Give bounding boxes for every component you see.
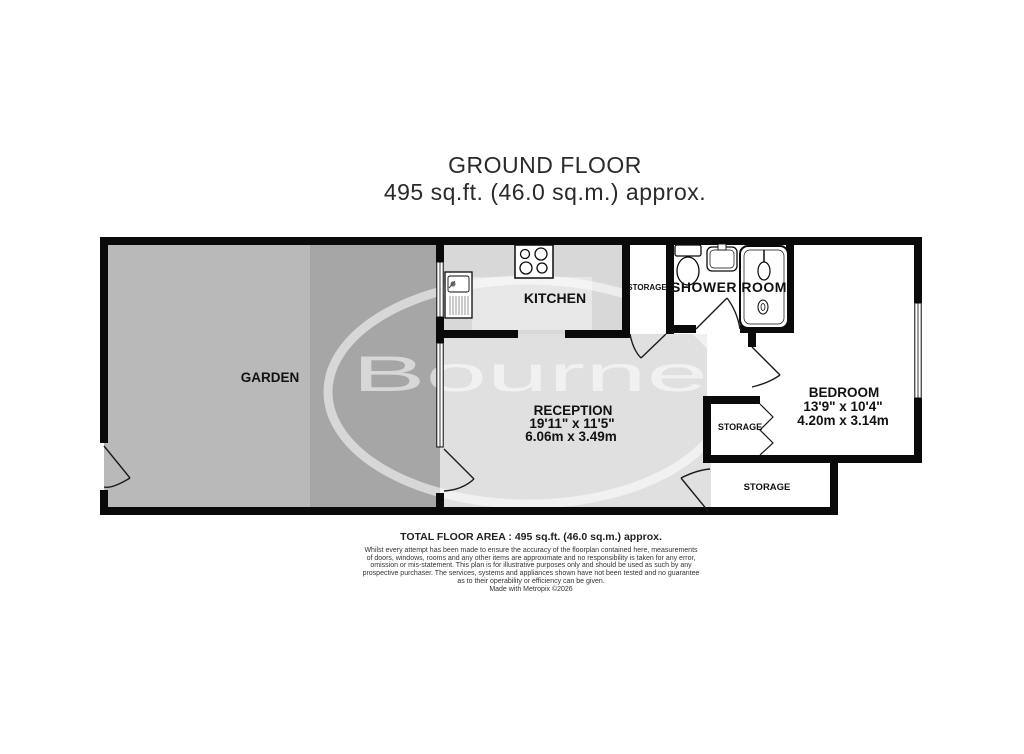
garden-label: GARDEN xyxy=(241,370,300,385)
wall-garden-top xyxy=(100,237,444,245)
made-with-credit: Made with Metropix ©2026 xyxy=(31,586,1024,594)
disclaimer: Whilst every attempt has been made to en… xyxy=(31,547,1024,593)
kitchen-sink-icon xyxy=(445,272,472,318)
wall-closet-top xyxy=(703,396,760,404)
disclaimer-line: Whilst every attempt has been made to en… xyxy=(31,547,1024,555)
bedroom-label: BEDROOM xyxy=(809,385,880,400)
disclaimer-line: omission or mis-statement. This plan is … xyxy=(31,562,1024,570)
storage-bottom-label: STORAGE xyxy=(744,482,791,493)
basin-icon xyxy=(707,244,737,271)
wall-kitchen-divider-left xyxy=(436,330,518,338)
storage-top-label: STORAGE xyxy=(627,283,667,292)
bedroom-dim-metric: 4.20m x 3.14m xyxy=(797,413,889,428)
kitchen-label: KITCHEN xyxy=(524,290,586,306)
stove-icon xyxy=(515,245,553,278)
wall-right-lower xyxy=(914,398,922,463)
wall-bedroom-bottom xyxy=(703,455,922,463)
wall-kitchen-divider-right xyxy=(565,330,630,338)
wall-storage-bottom-right xyxy=(830,455,838,515)
total-floor-area: TOTAL FLOOR AREA : 495 sq.ft. (46.0 sq.m… xyxy=(31,531,1024,543)
wall-garden-left-upper xyxy=(100,237,108,443)
reception-dim-metric: 6.06m x 3.49m xyxy=(525,429,617,444)
wall-right-upper xyxy=(914,237,922,303)
storage-closet-label: STORAGE xyxy=(718,422,762,432)
disclaimer-line: as to their operability or efficiency ca… xyxy=(31,578,1024,586)
wall-shower-bottom-left xyxy=(666,325,696,333)
disclaimer-line: of doors, windows, rooms and any other i… xyxy=(31,555,1024,563)
wall-closet-left xyxy=(703,396,711,463)
wall-top xyxy=(436,237,922,245)
watermark-text: Bourne xyxy=(352,346,708,402)
shower-room-label: SHOWER ROOM xyxy=(671,279,787,295)
wall-garden-bottom xyxy=(100,507,444,515)
plan-footer: TOTAL FLOOR AREA : 495 sq.ft. (46.0 sq.m… xyxy=(31,531,1024,593)
wall-bedroom-door-stub xyxy=(748,333,756,347)
wall-bottom xyxy=(436,507,838,515)
disclaimer-line: prospective purchaser. The services, sys… xyxy=(31,570,1024,578)
bedroom-dim-imperial: 13'9" x 10'4" xyxy=(803,399,882,414)
floorplan-drawing: Bourne xyxy=(0,0,1024,754)
floorplan-page: GROUND FLOOR 495 sq.ft. (46.0 sq.m.) app… xyxy=(0,0,1024,754)
